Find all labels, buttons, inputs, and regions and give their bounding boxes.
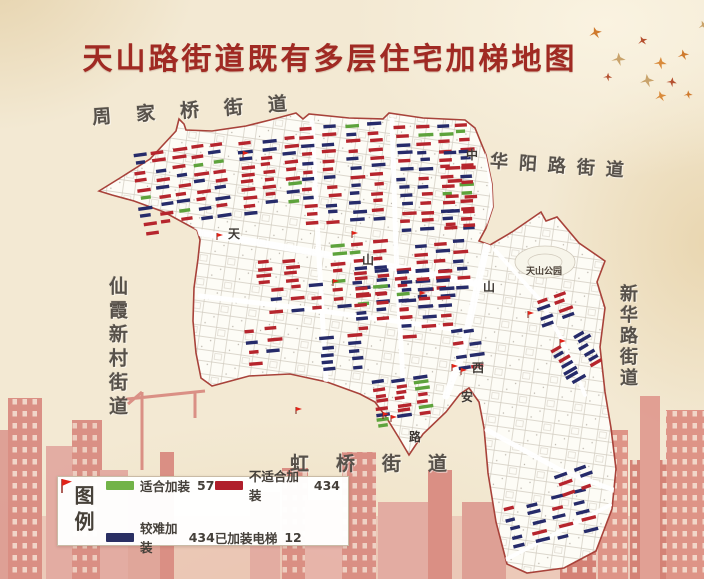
road-label-char: 中: [466, 146, 478, 163]
flag-icon: [58, 477, 75, 494]
road-label-char: 山: [483, 278, 495, 295]
legend-label: 较难加装: [140, 518, 182, 556]
bird-icon: [683, 90, 693, 99]
road-label-char: 天: [228, 225, 240, 242]
legend-box: 图例 适合加装 57 不适合加装 434 较难加装 434: [57, 476, 349, 546]
legend-count: 434: [189, 530, 215, 545]
legend-count: 57: [197, 478, 214, 493]
suitable-swatch: [106, 481, 134, 490]
page-title: 天山路街道既有多层住宅加梯地图: [0, 34, 660, 78]
legend-item-difficult: 较难加装 434: [106, 518, 215, 556]
legend-item-unsuitable: 不适合加装 434: [215, 466, 340, 504]
legend-item-suitable: 适合加装 57: [106, 466, 215, 504]
legend-grid: 适合加装 57 不适合加装 434 较难加装 434 已加装电梯 12: [106, 466, 340, 556]
unsuitable-swatch: [215, 481, 243, 490]
legend-count: 434: [314, 478, 340, 493]
difficult-swatch: [106, 533, 134, 542]
district-label-xianxiaxincun: 仙霞新村街道: [104, 276, 131, 420]
road-label-char: 西: [472, 359, 484, 376]
poster: 天山路街道既有多层住宅加梯地图 周家桥街道 华阳路街道 仙霞新村街道 新华路街道…: [0, 0, 704, 579]
road-label-char: 安: [461, 388, 473, 405]
bird-icon: [666, 76, 679, 88]
legend-item-installed: 已加装电梯 12: [215, 518, 340, 556]
legend-label: 不适合加装: [249, 466, 307, 504]
district-label-xinhualu: 新华路街道: [614, 284, 640, 389]
park-label: 天山公园: [526, 264, 562, 277]
legend-label: 适合加装: [140, 476, 190, 495]
road-label-char: 山: [362, 251, 374, 268]
legend-label: 已加装电梯: [215, 528, 278, 547]
road-label-char: 路: [409, 428, 421, 445]
bird-icon: [654, 90, 667, 103]
bird-icon: [677, 49, 690, 61]
bird-icon: [697, 19, 704, 31]
legend-count: 12: [284, 530, 301, 545]
